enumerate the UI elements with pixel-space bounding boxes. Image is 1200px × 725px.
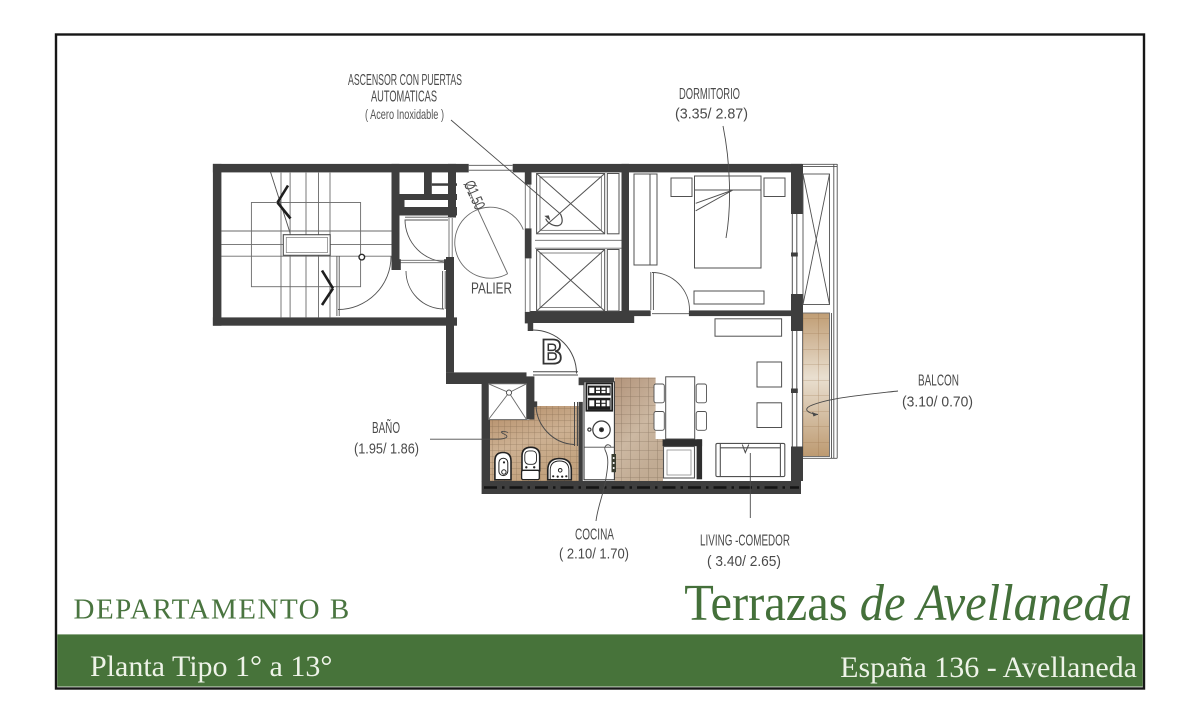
- svg-text:( 2.10/ 1.70): ( 2.10/ 1.70): [559, 546, 629, 563]
- svg-text:Terrazas de Avellaneda: Terrazas de Avellaneda: [684, 573, 1132, 631]
- svg-text:AUTOMATICAS: AUTOMATICAS: [371, 89, 437, 106]
- svg-text:DEPARTAMENTO B: DEPARTAMENTO B: [74, 594, 351, 626]
- svg-text:DORMITORIO: DORMITORIO: [679, 86, 740, 103]
- svg-text:PALIER: PALIER: [471, 281, 512, 298]
- svg-text:(3.10/ 0.70): (3.10/ 0.70): [902, 394, 973, 411]
- svg-text:España 136 - Avellaneda: España 136 - Avellaneda: [840, 651, 1137, 684]
- svg-text:( Acero Inoxidable ): ( Acero Inoxidable ): [365, 106, 444, 122]
- svg-text:ASCENSOR CON PUERTAS: ASCENSOR CON PUERTAS: [348, 72, 462, 89]
- svg-text:BALCON: BALCON: [918, 373, 959, 390]
- svg-text:(3.35/ 2.87): (3.35/ 2.87): [675, 106, 748, 123]
- svg-text:Planta Tipo 1° a 13°: Planta Tipo 1° a 13°: [90, 650, 332, 683]
- svg-text:( 3.40/ 2.65): ( 3.40/ 2.65): [707, 553, 781, 570]
- svg-text:COCINA: COCINA: [575, 527, 614, 544]
- svg-text:LIVING -COMEDOR: LIVING -COMEDOR: [700, 533, 790, 550]
- svg-text:(1.95/ 1.86): (1.95/ 1.86): [354, 441, 419, 458]
- svg-text:BAÑO: BAÑO: [372, 417, 400, 437]
